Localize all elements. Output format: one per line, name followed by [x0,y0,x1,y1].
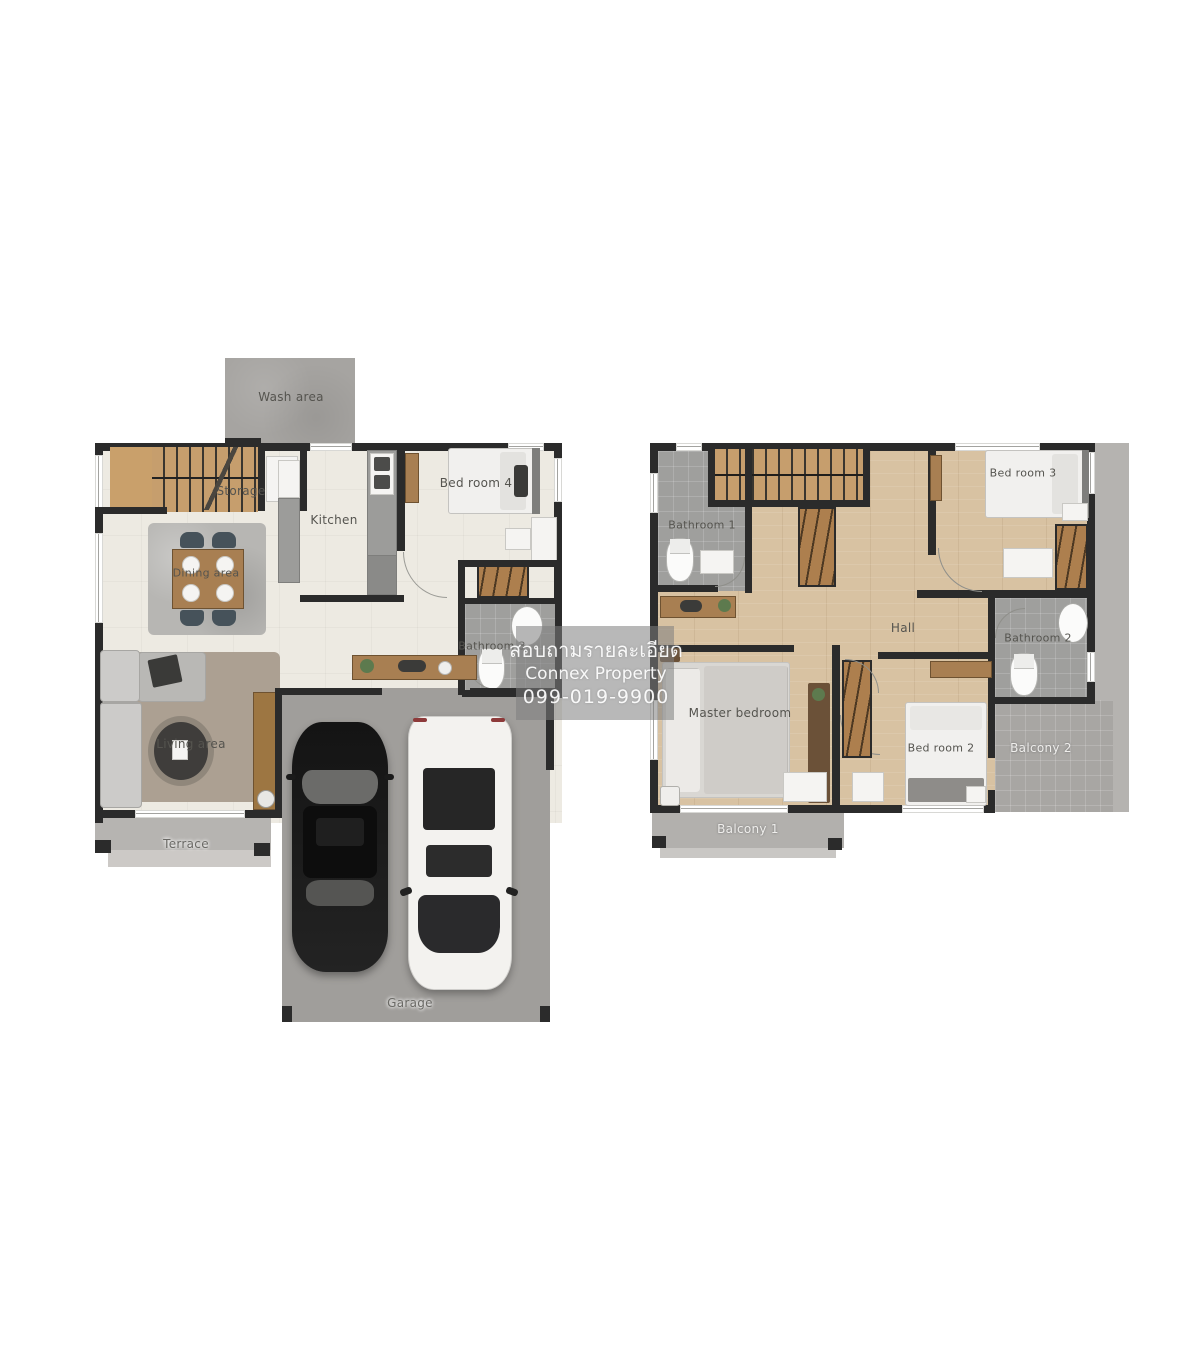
wall-segment [917,590,1095,598]
bathroom1-toilet [666,538,694,582]
hanger-closet [477,565,529,598]
bedroom4-wardrobe [405,453,419,503]
master-nightstand [660,786,680,806]
bedroom3-shelf [930,455,942,501]
window [95,533,103,623]
dining-chair [212,532,236,548]
wall-stub [652,836,666,848]
van-taillight [491,718,505,722]
kitchen-counter-left [278,460,300,498]
bed-pillow [910,706,982,730]
hall-label: Hall [891,621,915,635]
bathroom2-toilet [1010,653,1038,696]
black-car-windshield [302,770,378,804]
wash-area-label: Wash area [258,390,324,404]
console-decor [680,600,702,612]
hanger-closet-hall [798,507,836,587]
balcony1-step [660,848,836,858]
black-car-mirror [286,774,296,780]
dining-chair [180,610,204,626]
bed-item [514,465,528,497]
living-label: Living area [156,737,226,751]
wall-segment [708,500,870,507]
stair-rail [715,474,865,476]
console-plant [718,599,731,612]
bedroom2-label: Bed room 2 [908,742,975,755]
bedroom2-desk [930,661,992,678]
bedroom4-desk [531,517,557,563]
sink-basin [374,475,390,489]
console-decor [398,660,426,672]
bedroom3-nightstand [1062,503,1088,521]
garage-label: Garage [387,996,433,1010]
wall-segment [282,688,382,695]
dining-plate [182,584,200,602]
bedroom4-table [505,528,531,550]
wall-stub [254,843,270,856]
window-sliding [680,805,788,813]
window [95,455,103,513]
kitchen-island [278,498,300,583]
bedroom3-label: Bed room 3 [990,467,1057,480]
wall-segment [658,585,718,592]
dining-label: Dining area [173,567,240,580]
window [676,443,702,451]
master-blanket [704,666,788,794]
balcony1-label: Balcony 1 [717,822,779,836]
console-plant [360,659,374,673]
sofa-left [100,702,142,808]
van-windshield [418,895,500,953]
black-car-mirror [384,774,394,780]
dining-plate [216,584,234,602]
window [310,443,352,451]
black-car-sunroof [316,818,364,846]
wall-segment [988,700,995,758]
wall-segment [300,595,404,602]
bed-headboard [532,448,540,514]
window [650,473,658,513]
terrace-step [108,850,271,867]
wall-segment [878,652,995,659]
black-car-rear-window [306,880,374,906]
sofa-top [100,650,140,702]
wall-stub [828,838,842,850]
terrace-label: Terrace [163,837,209,851]
window [1087,652,1095,682]
console-decor [438,661,452,675]
master-dresser [783,772,827,802]
wall-segment [745,443,752,593]
wall-segment [95,507,167,514]
watermark-line2: Connex Property [476,663,716,686]
wall-segment [988,590,995,700]
watermark-text: สอบถามรายละเอียด Connex Property 099-019… [476,638,716,709]
kitchen-label: Kitchen [310,513,357,527]
dining-chair [180,532,204,548]
window [554,458,562,502]
wall-segment [988,790,995,812]
console-plant [812,688,825,701]
wall-segment [258,443,265,511]
garage-stool [257,790,275,808]
balcony2-floor [995,700,1113,812]
van-taillight [413,718,427,722]
dining-chair [212,610,236,626]
bedroom3-closet [1055,524,1088,590]
bathroom1-label: Bathroom 1 [668,519,736,532]
window-sliding [135,810,245,818]
watermark-line3: 099-019-9900 [476,686,716,709]
kitchen-stove [367,555,397,595]
wall-segment [397,443,405,551]
bedroom4-label: Bed room 4 [440,476,513,490]
bedroom3-desk [1003,548,1053,578]
van-sunroof [423,768,495,830]
stair-landing [110,447,152,512]
wall-segment [300,443,307,511]
wall-segment [458,598,562,604]
van-sunroof [426,845,492,877]
sink-basin [374,457,390,471]
watermark-line1: สอบถามรายละเอียด [476,638,716,663]
floorplan-canvas: Wash area Terrace Storage Kitchen Bed ro… [0,0,1200,1350]
balcony2-label: Balcony 2 [1010,741,1072,755]
wall-segment [995,697,1095,704]
window-sliding [902,805,984,813]
understair-slope [185,447,258,510]
staircase-2f [715,449,865,503]
wall-segment [832,645,840,810]
wall-segment [275,688,282,814]
wall-stub [95,840,111,853]
wall-stub [282,1006,292,1022]
wall-segment [708,443,715,507]
storage-label: Storage [216,484,265,498]
wall-segment [863,443,870,507]
wall-stub [540,1006,550,1022]
bedroom2-nightstand [966,786,986,803]
corridor-table [852,772,884,802]
